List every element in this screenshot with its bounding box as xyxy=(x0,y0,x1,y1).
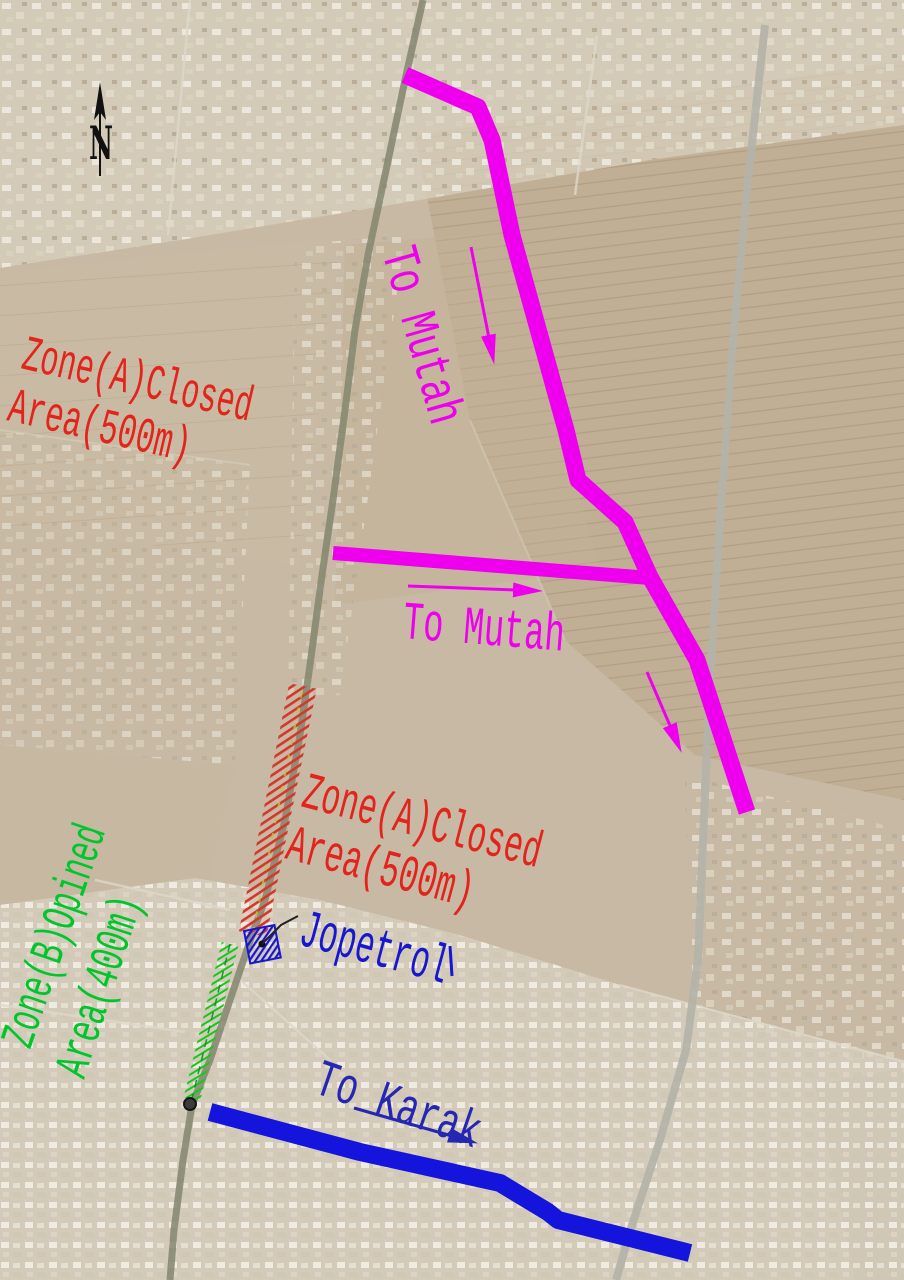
annotated-satellite-map: Jopetrol Zone(A)Closed Area(500m) Zone(A… xyxy=(0,0,904,1280)
map-canvas: Jopetrol Zone(A)Closed Area(500m) Zone(A… xyxy=(0,0,904,1280)
north-label: N xyxy=(89,116,113,170)
junction-point xyxy=(184,1098,196,1110)
route-label-to-mutah-branch: To Mutah xyxy=(401,594,567,668)
